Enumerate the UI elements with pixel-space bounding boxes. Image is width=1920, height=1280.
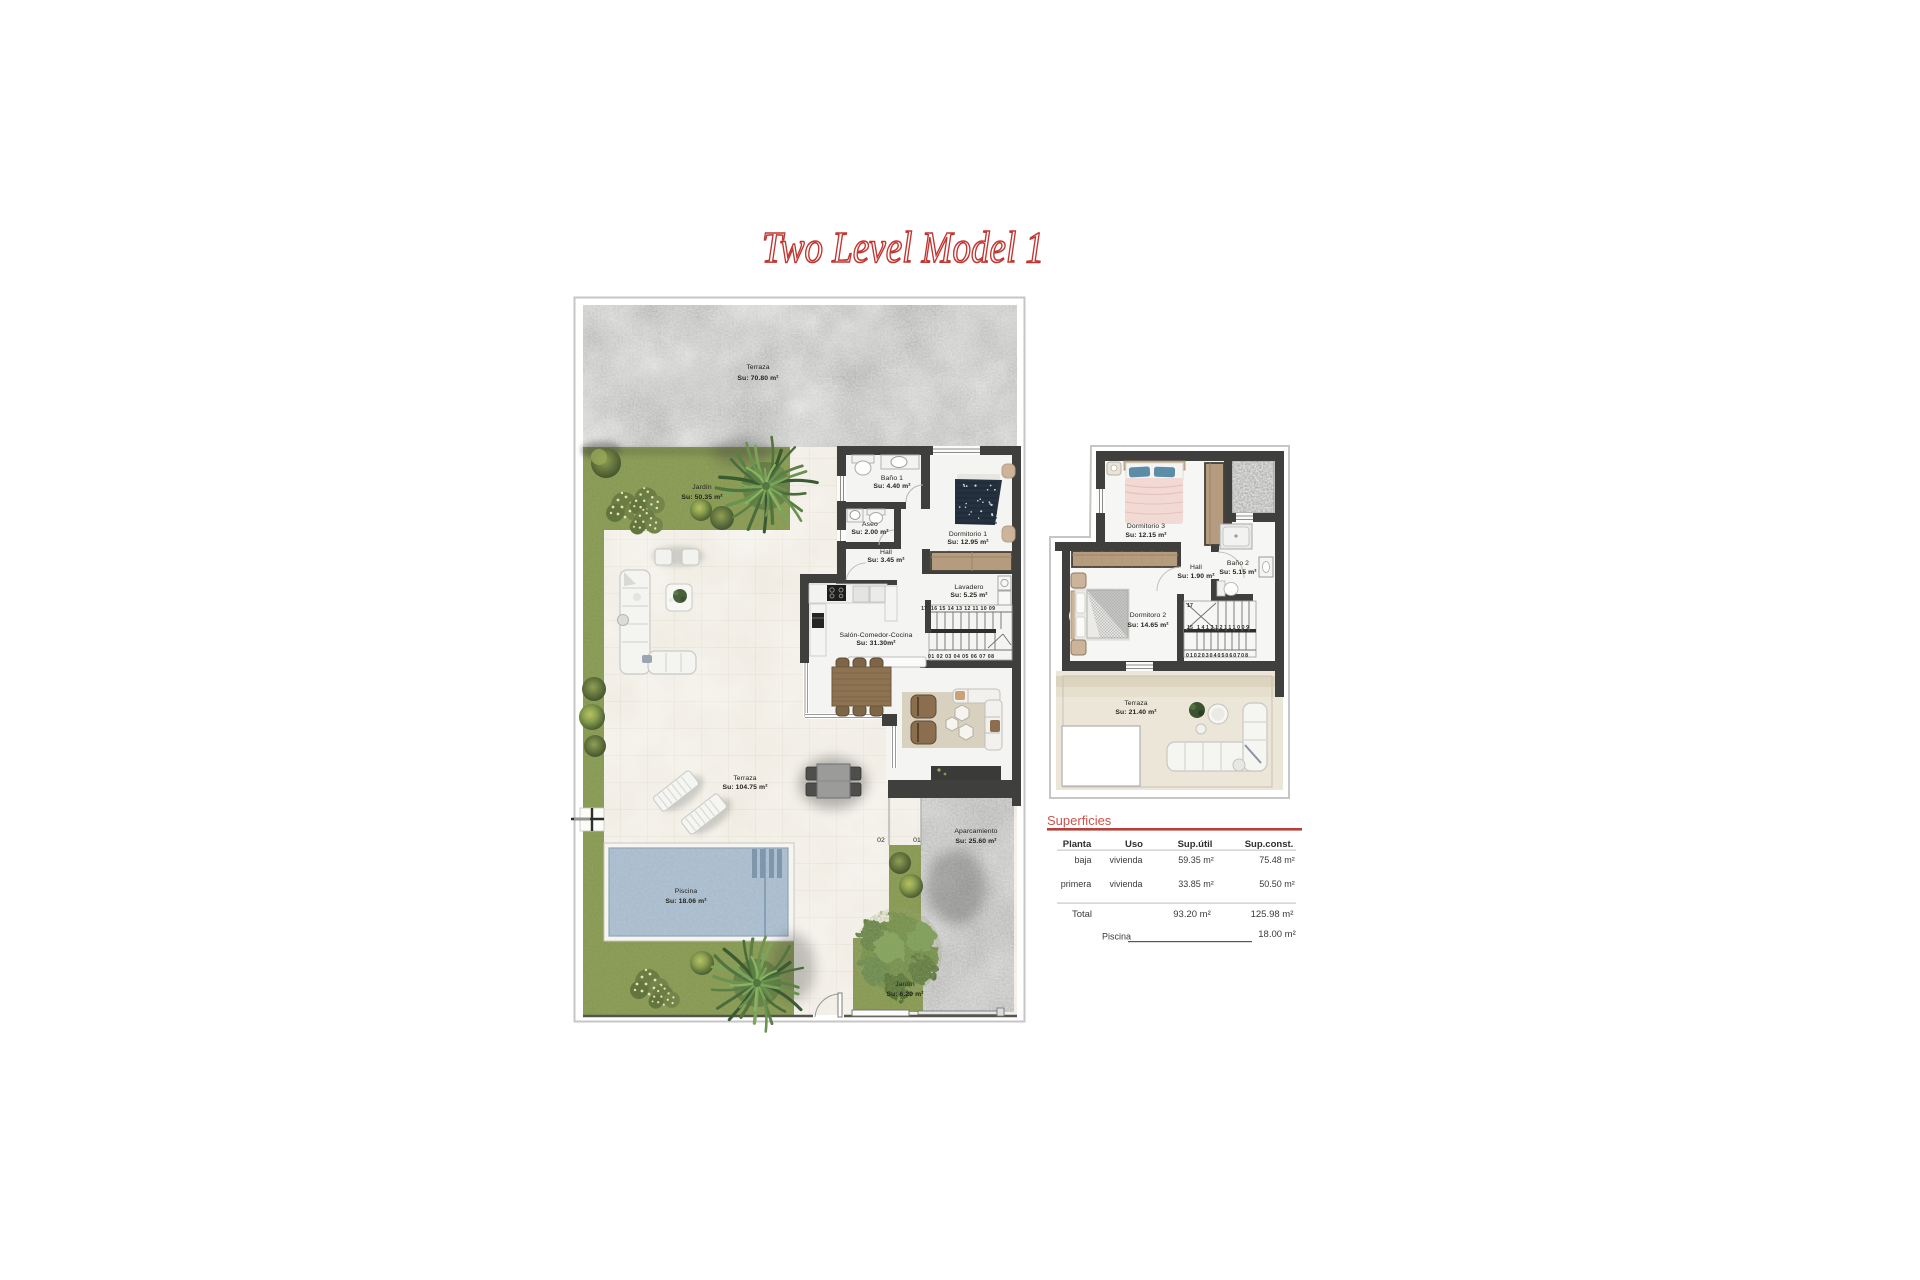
svg-text:Sup.const.: Sup.const. — [1245, 839, 1294, 850]
svg-text:Baño 2: Baño 2 — [1227, 560, 1249, 567]
svg-text:Salón-Comedor-Cocina: Salón-Comedor-Cocina — [839, 632, 912, 639]
svg-text:Su: 2.00 m²: Su: 2.00 m² — [851, 529, 889, 536]
svg-text:Su: 104.75 m²: Su: 104.75 m² — [722, 784, 768, 791]
svg-text:Terraza: Terraza — [1124, 700, 1147, 707]
svg-text:59.35 m²: 59.35 m² — [1178, 855, 1214, 865]
svg-text:vivienda: vivienda — [1109, 879, 1142, 889]
svg-text:Uso: Uso — [1125, 839, 1143, 850]
svg-text:Hall: Hall — [1190, 564, 1202, 571]
svg-text:Su: 14.65 m²: Su: 14.65 m² — [1127, 622, 1169, 629]
svg-text:Su: 25.60 m²: Su: 25.60 m² — [955, 838, 997, 845]
svg-text:Aparcamiento: Aparcamiento — [954, 828, 997, 835]
svg-text:02: 02 — [877, 837, 885, 844]
svg-text:50.50 m²: 50.50 m² — [1259, 879, 1295, 889]
svg-text:Su: 18.06 m²: Su: 18.06 m² — [665, 898, 707, 905]
svg-text:Su: 1.90 m²: Su: 1.90 m² — [1177, 573, 1215, 580]
svg-text:0102030405060708: 0102030405060708 — [1186, 653, 1248, 659]
svg-text:Su: 70.80 m²: Su: 70.80 m² — [737, 375, 779, 382]
svg-text:Su: 6.20 m²: Su: 6.20 m² — [886, 991, 924, 998]
svg-text:Piscina: Piscina — [675, 888, 698, 895]
svg-text:Jardín: Jardín — [895, 981, 915, 988]
svg-text:Su: 4.40 m²: Su: 4.40 m² — [873, 483, 911, 490]
svg-text:17: 17 — [921, 606, 927, 612]
svg-text:Terraza: Terraza — [733, 775, 756, 782]
svg-text:Jardín: Jardín — [692, 484, 712, 491]
svg-text:Su: 31.30m²: Su: 31.30m² — [856, 640, 896, 647]
svg-text:Dormitorio 3: Dormitorio 3 — [1127, 523, 1165, 530]
svg-text:Two Level Model 1: Two Level Model 1 — [762, 223, 1044, 272]
svg-text:vivienda: vivienda — [1109, 855, 1142, 865]
svg-text:Su: 50.35 m²: Su: 50.35 m² — [681, 494, 723, 501]
svg-text:Dormitorio 1: Dormitorio 1 — [949, 531, 987, 538]
svg-text:Su: 5.25 m²: Su: 5.25 m² — [950, 592, 988, 599]
svg-text:Su: 5.15 m²: Su: 5.15 m² — [1219, 569, 1257, 576]
svg-text:93.20 m²: 93.20 m² — [1173, 909, 1211, 920]
svg-text:75.48 m²: 75.48 m² — [1259, 855, 1295, 865]
svg-text:Piscina: Piscina — [1102, 932, 1131, 942]
svg-text:Lavadero: Lavadero — [954, 584, 983, 591]
svg-text:Baño 1: Baño 1 — [881, 475, 903, 482]
svg-text:Su: 21.40 m²: Su: 21.40 m² — [1115, 709, 1157, 716]
svg-text:Aseo: Aseo — [862, 521, 878, 528]
svg-text:Planta: Planta — [1063, 839, 1092, 850]
svg-text:18.00 m²: 18.00 m² — [1258, 929, 1296, 940]
svg-text:Terraza: Terraza — [746, 364, 769, 371]
svg-text:baja: baja — [1074, 855, 1091, 865]
svg-text:primera: primera — [1061, 879, 1092, 889]
svg-text:Dormitoro 2: Dormitoro 2 — [1130, 612, 1167, 619]
svg-text:33.85 m²: 33.85 m² — [1178, 879, 1214, 889]
svg-text:Su: 12.15 m²: Su: 12.15 m² — [1125, 532, 1167, 539]
svg-text:01 02 03 04 05 06 07 08: 01 02 03 04 05 06 07 08 — [928, 654, 994, 660]
svg-text:15: 15 — [1187, 625, 1193, 631]
svg-text:Su: 3.45 m²: Su: 3.45 m² — [867, 557, 905, 564]
svg-text:Total: Total — [1072, 909, 1092, 920]
svg-text:Superficies: Superficies — [1047, 813, 1112, 828]
svg-text:17: 17 — [1187, 603, 1193, 609]
svg-text:01: 01 — [913, 837, 921, 844]
svg-text:16 15 14 13 12 11 10 09: 16 15 14 13 12 11 10 09 — [931, 606, 995, 612]
svg-text:Su: 12.95 m²: Su: 12.95 m² — [947, 539, 989, 546]
svg-text:Sup.útil: Sup.útil — [1178, 839, 1213, 850]
svg-text:125.98 m²: 125.98 m² — [1251, 909, 1294, 920]
svg-text:Hall: Hall — [880, 549, 892, 556]
